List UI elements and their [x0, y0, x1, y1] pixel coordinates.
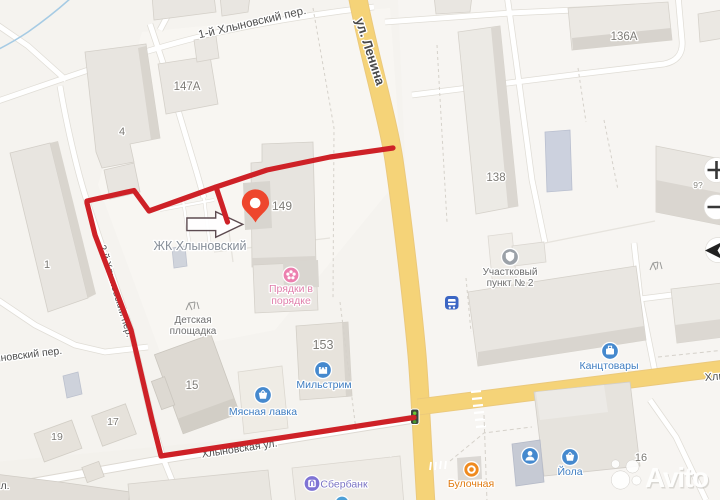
- svg-text:9?: 9?: [693, 180, 703, 190]
- svg-text:147А: 147А: [174, 81, 201, 93]
- svg-text:Участковый: Участковый: [483, 267, 538, 278]
- svg-text:Прядки в: Прядки в: [269, 283, 313, 295]
- svg-text:19: 19: [51, 431, 63, 443]
- svg-text:площадка: площадка: [170, 326, 217, 337]
- svg-text:пункт № 2: пункт № 2: [487, 278, 534, 289]
- svg-text:4: 4: [119, 126, 125, 138]
- svg-text:Avito: Avito: [645, 462, 709, 493]
- svg-text:л.: л.: [0, 480, 9, 492]
- svg-text:Мильстрим: Мильстрим: [296, 379, 351, 391]
- svg-text:Канцтовары: Канцтовары: [580, 360, 639, 372]
- svg-text:153: 153: [313, 338, 334, 352]
- svg-text:порядке: порядке: [271, 295, 311, 307]
- svg-text:149: 149: [272, 199, 292, 213]
- svg-text:Сбербанк: Сбербанк: [320, 479, 368, 491]
- svg-text:1: 1: [44, 259, 50, 271]
- svg-text:17: 17: [107, 416, 119, 428]
- svg-text:ЖК Хлыновский: ЖК Хлыновский: [154, 239, 247, 253]
- svg-text:15: 15: [186, 380, 199, 392]
- svg-text:138: 138: [486, 172, 505, 184]
- svg-text:Булочная: Булочная: [448, 478, 494, 490]
- svg-text:Хлын: Хлын: [704, 370, 720, 384]
- svg-text:Мясная лавка: Мясная лавка: [229, 406, 297, 418]
- svg-text:136А: 136А: [611, 31, 638, 43]
- svg-text:Детская: Детская: [174, 315, 211, 326]
- svg-text:Йола: Йола: [557, 465, 582, 478]
